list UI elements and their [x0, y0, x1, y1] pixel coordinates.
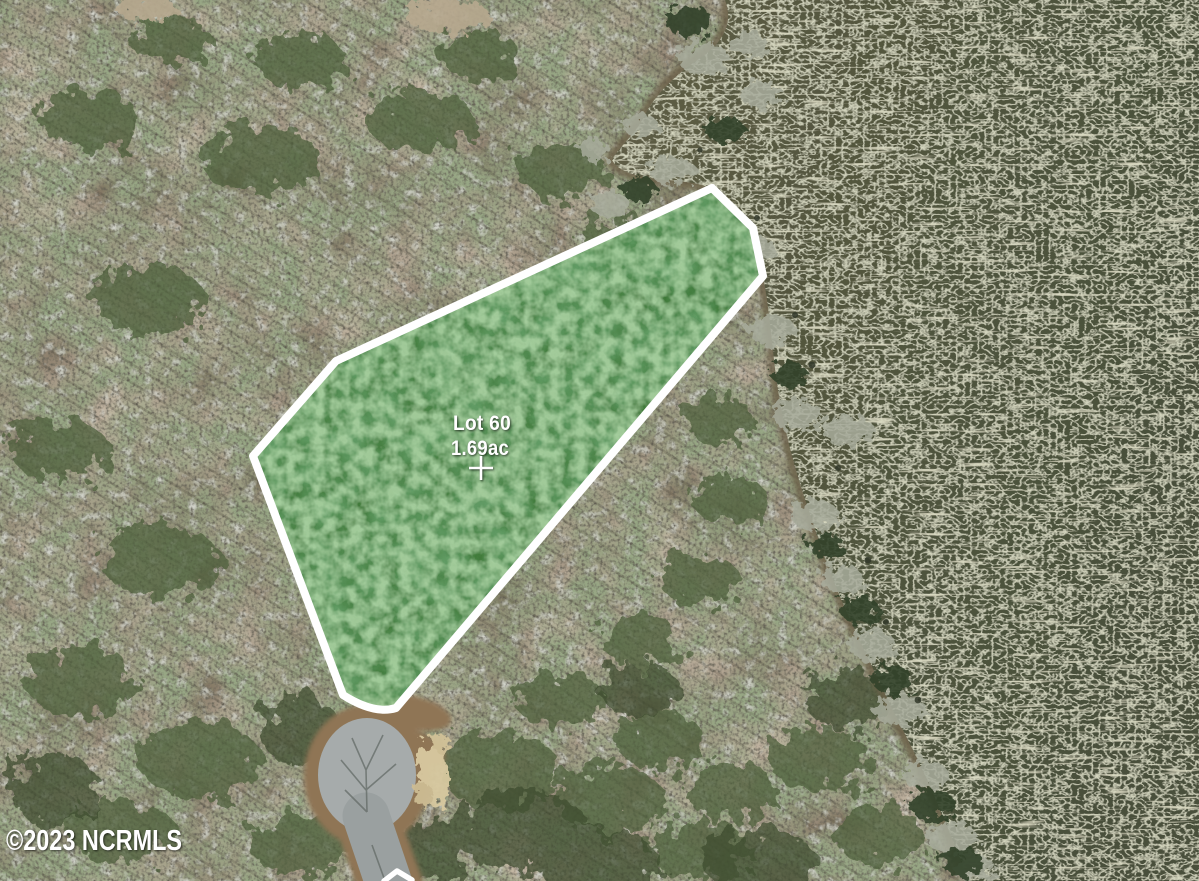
aerial-map: Lot 60 1.69ac ©2023 NCRMLS: [0, 0, 1199, 881]
mls-watermark: ©2023 NCRMLS: [6, 825, 182, 857]
road-stem-pavement: [366, 816, 389, 881]
parcel-label-name: Lot 60: [453, 412, 511, 435]
